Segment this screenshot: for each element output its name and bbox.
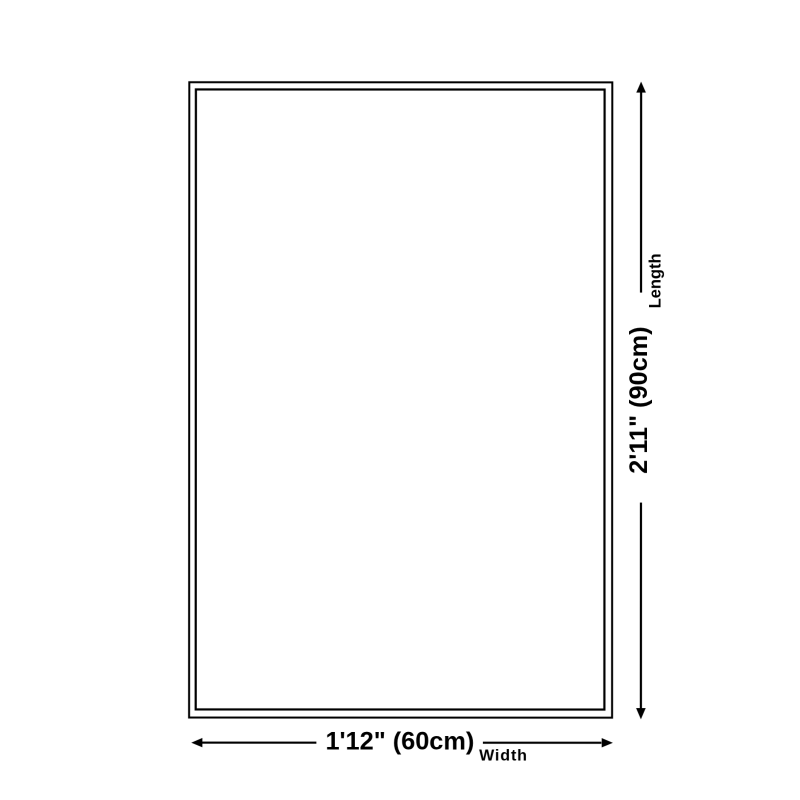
svg-text:Length: Length [646,253,664,308]
svg-text:1'12" (60cm): 1'12" (60cm) [325,727,474,755]
svg-text:Width: Width [479,748,528,765]
svg-text:2'11" (90cm): 2'11" (90cm) [625,326,653,473]
